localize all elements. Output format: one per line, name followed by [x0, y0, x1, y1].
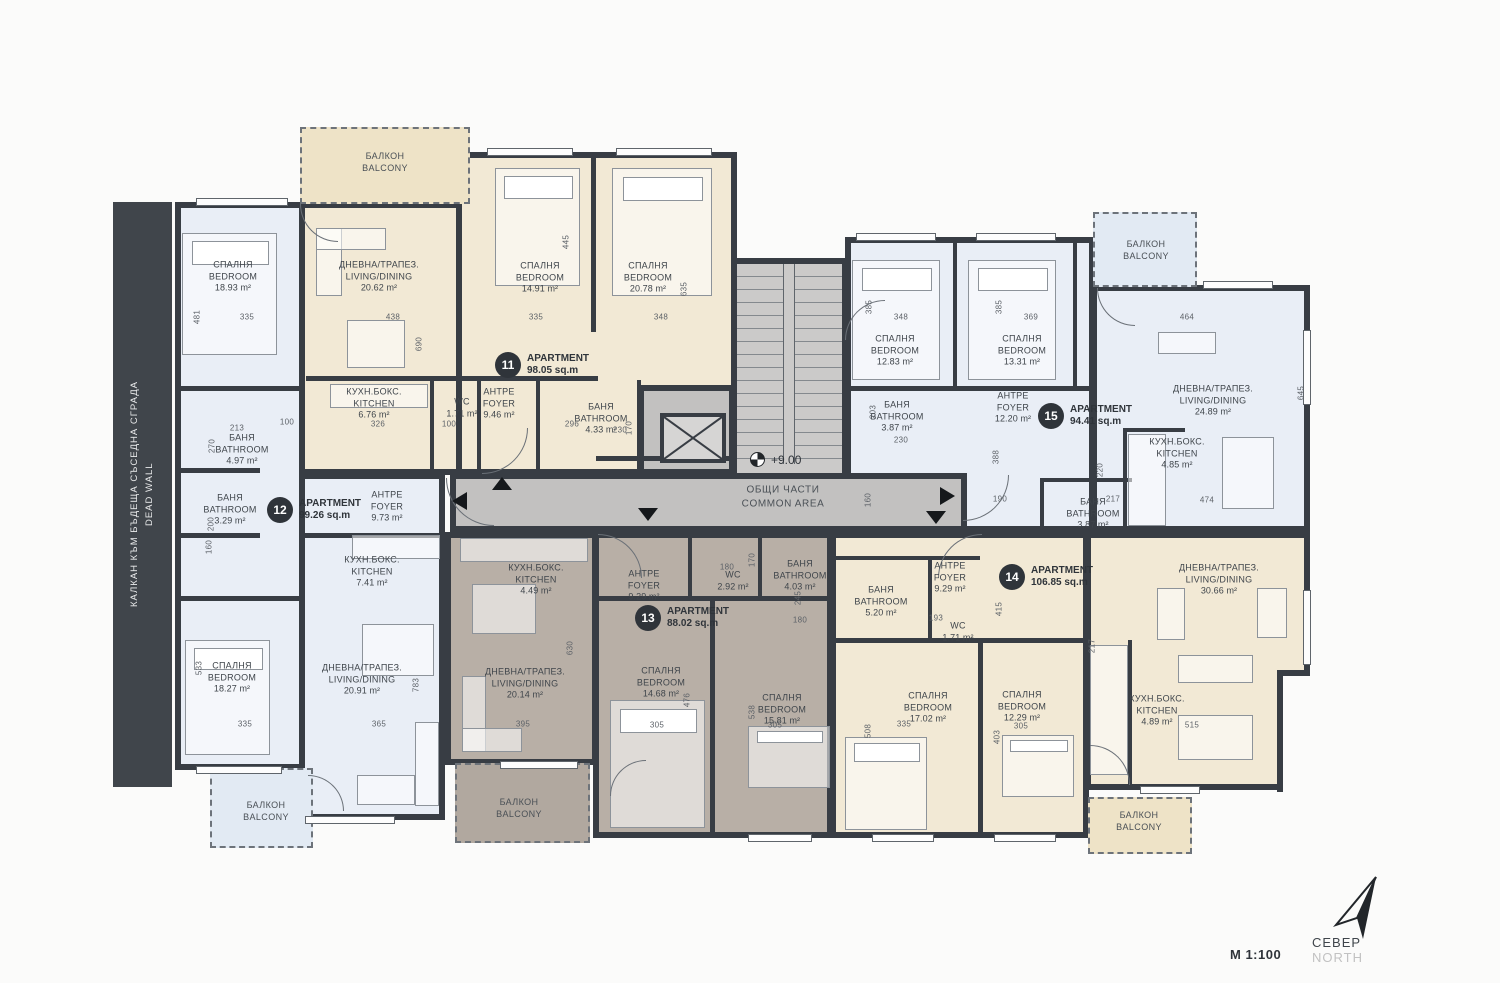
- dimension-label: 230: [613, 426, 627, 435]
- room-label-apartment-13: АНТРЕFOYER9.29 m²: [628, 568, 660, 603]
- apartment-title-area: APARTMENT88.02 sq.m: [667, 606, 729, 631]
- wall-segment: [928, 558, 932, 640]
- room-label-apartment-14: АНТРЕFOYER9.29 m²: [934, 560, 966, 595]
- dimension-label: 305: [650, 721, 664, 730]
- entrance-arrow-icon: [940, 487, 955, 505]
- common-corridor: [450, 473, 967, 532]
- room-label-apartment-12: СПАЛНЯBEDROOM18.27 m²: [208, 660, 256, 695]
- dimension-label: 783: [412, 678, 421, 692]
- wall-segment: [536, 380, 540, 473]
- apartment-badge-11: 11APARTMENT98.05 sq.m: [495, 352, 589, 378]
- room-label-apartment-11: СПАЛНЯBEDROOM20.78 m²: [624, 260, 672, 295]
- window-icon: [1203, 281, 1273, 289]
- common-area-label-bg: ОБЩИ ЧАСТИ: [747, 485, 820, 496]
- sofa-icon: [1257, 588, 1287, 638]
- apartment-title-area: APARTMENT94.41 sq.m: [1070, 404, 1132, 429]
- room-label-apartment-14: ДНЕВНА/ТРАПЕЗ.LIVING/DINING30.66 m²: [1179, 562, 1259, 597]
- entrance-arrow-icon: [492, 477, 512, 490]
- dimension-label: 335: [238, 720, 252, 729]
- room-label-apartment-11: WC1.71 m²: [446, 396, 477, 419]
- dimension-label: 160: [205, 540, 214, 554]
- dimension-label: 100: [442, 420, 456, 429]
- balcony-label: БАЛКОНBALCONY: [496, 796, 542, 820]
- level-value: +9.00: [771, 453, 801, 467]
- dimension-label: 296: [565, 420, 579, 429]
- balcony-label: БАЛКОНBALCONY: [1116, 809, 1162, 833]
- room-label-apartment-11: АНТРЕFOYER9.46 m²: [483, 386, 515, 421]
- dimension-label: 220: [1096, 463, 1105, 477]
- dimension-label: 203: [869, 405, 878, 419]
- apartment-badge-13: 13APARTMENT88.02 sq.m: [635, 605, 729, 631]
- dead-wall-label-bg: КАЛКАН КЪМ БЪДЕЩА СЪСЕДНА СГРАДА: [129, 381, 140, 607]
- wall-segment: [181, 386, 299, 391]
- dimension-label: 100: [280, 418, 294, 427]
- wall-segment: [953, 237, 957, 389]
- room-label-apartment-11: ДНЕВНА/ТРАПЕЗ.LIVING/DINING20.62 m²: [339, 259, 419, 294]
- dimension-label: 438: [386, 313, 400, 322]
- sofa-icon: [357, 775, 415, 805]
- bed-furniture-icon: [845, 737, 927, 830]
- dimension-label: 365: [372, 720, 386, 729]
- balcony-label: БАЛКОНBALCONY: [243, 799, 289, 823]
- dimension-label: 474: [1200, 496, 1214, 505]
- window-icon: [872, 834, 934, 842]
- window-icon: [305, 816, 395, 824]
- room-label-apartment-12: БАНЯBATHROOM4.97 m²: [215, 432, 268, 467]
- apartment-number: 12: [267, 497, 293, 523]
- dimension-label: 305: [1014, 722, 1028, 731]
- window-icon: [500, 761, 578, 769]
- apartment-badge-12: 12APARTMENT99.26 sq.m: [267, 497, 361, 523]
- wall-segment: [430, 380, 434, 473]
- wall-segment: [710, 600, 715, 838]
- apartment-badge-15: 15APARTMENT94.41 sq.m: [1038, 403, 1132, 429]
- dining-table-icon: [1222, 437, 1274, 509]
- dimension-label: 305: [768, 721, 782, 730]
- room-label-apartment-15: СПАЛНЯBEDROOM13.31 m²: [998, 333, 1046, 368]
- room-label-apartment-11: КУХН.БОКС.KITCHEN6.76 m²: [346, 386, 402, 421]
- dimension-label: 213: [230, 424, 244, 433]
- wall-segment: [181, 533, 260, 538]
- dimension-label: 180: [793, 616, 807, 625]
- window-icon: [616, 148, 712, 156]
- apartment-title-area: APARTMENT106.85 sq.m: [1031, 565, 1093, 590]
- window-icon: [1140, 786, 1200, 794]
- dimension-label: 217: [1088, 639, 1097, 653]
- entrance-arrow-icon: [638, 508, 658, 521]
- wall-segment: [1123, 430, 1127, 532]
- room-label-apartment-14: СПАЛНЯBEDROOM12.29 m²: [998, 689, 1046, 724]
- room-label-apartment-13: WC2.92 m²: [717, 569, 748, 592]
- dimension-label: 533: [195, 661, 204, 675]
- wall-segment: [1040, 478, 1044, 532]
- room-label-apartment-13: БАНЯBATHROOM4.03 m²: [773, 558, 826, 593]
- dimension-label: 326: [371, 420, 385, 429]
- stairs-stringer: [783, 264, 795, 464]
- room-label-apartment-15: КУХН.БОКС.KITCHEN4.85 m²: [1149, 436, 1205, 471]
- dimension-label: 515: [1185, 721, 1199, 730]
- window-icon: [976, 233, 1056, 241]
- apartment-number: 14: [999, 564, 1025, 590]
- dimension-label: 348: [654, 313, 668, 322]
- dimension-label: 481: [193, 310, 202, 324]
- wall-segment: [181, 596, 299, 601]
- dimension-label: 180: [720, 563, 734, 572]
- sofa-icon: [1158, 332, 1216, 354]
- kitchen-counter-icon: [460, 538, 588, 562]
- elevator-icon: [660, 413, 726, 463]
- window-icon: [487, 148, 573, 156]
- window-icon: [196, 766, 282, 774]
- level-marker: +9.00: [750, 452, 801, 467]
- room-label-apartment-15: АНТРЕFOYER12.20 m²: [995, 390, 1031, 425]
- balcony-label: БАЛКОНBALCONY: [362, 150, 408, 174]
- dimension-label: 403: [993, 730, 1002, 744]
- wall-segment: [978, 640, 983, 838]
- dimension-label: 200: [207, 517, 216, 531]
- dimension-label: 335: [240, 313, 254, 322]
- dimension-label: 217: [1106, 495, 1120, 504]
- common-area-label: ОБЩИ ЧАСТИ COMMON AREA: [742, 484, 825, 511]
- apartment-title-area: APARTMENT99.26 sq.m: [299, 498, 361, 523]
- dining-table-icon: [347, 320, 405, 368]
- room-label-apartment-12: АНТРЕFOYER9.73 m²: [371, 489, 403, 524]
- sofa-icon: [415, 722, 439, 806]
- bed-furniture-icon: [748, 726, 830, 788]
- bed-furniture-icon: [185, 640, 270, 755]
- room-label-apartment-13: ДНЕВНА/ТРАПЕЗ.LIVING/DINING20.14 m²: [485, 666, 565, 701]
- apartment-number: 15: [1038, 403, 1064, 429]
- dimension-label: 690: [415, 337, 424, 351]
- level-symbol-icon: [750, 452, 765, 467]
- bed-furniture-icon: [610, 700, 705, 828]
- dimension-label: 445: [562, 235, 571, 249]
- dimension-label: 464: [1180, 313, 1194, 322]
- dimension-label: 335: [529, 313, 543, 322]
- scale-label: М 1:100: [1230, 947, 1281, 962]
- sofa-icon: [462, 728, 522, 752]
- dimension-label: 538: [748, 705, 757, 719]
- dimension-label: 245: [794, 591, 803, 605]
- dimension-label: 635: [680, 282, 689, 296]
- apartment-number: 11: [495, 352, 521, 378]
- north-label-en: NORTH: [1312, 950, 1363, 965]
- balcony-label: БАЛКОНBALCONY: [1123, 238, 1169, 262]
- dead-wall: КАЛКАН КЪМ БЪДЕЩА СЪСЕДНА СГРАДА DEAD WA…: [113, 202, 172, 787]
- dimension-label: 385: [995, 300, 1004, 314]
- room-label-apartment-13: СПАЛНЯBEDROOM14.68 m²: [637, 665, 685, 700]
- bed-furniture-icon: [1002, 735, 1074, 797]
- dimension-label: 415: [995, 602, 1004, 616]
- apartment-title-area: APARTMENT98.05 sq.m: [527, 353, 589, 378]
- wall-segment: [477, 380, 481, 473]
- room-label-apartment-14: WC1.71 m²: [942, 620, 973, 643]
- wall-segment: [1123, 428, 1185, 432]
- wall-segment: [591, 152, 596, 332]
- dead-wall-label-en: DEAD WALL: [145, 463, 156, 527]
- apartment-number: 13: [635, 605, 661, 631]
- dimension-label: 395: [516, 720, 530, 729]
- common-area-label-en: COMMON AREA: [742, 498, 825, 509]
- dead-wall-label: КАЛКАН КЪМ БЪДЕЩА СЪСЕДНА СГРАДА DEAD WA…: [127, 381, 157, 607]
- dimension-label: 160: [864, 493, 873, 507]
- room-label-apartment-15: ДНЕВНА/ТРАПЕЗ.LIVING/DINING24.89 m²: [1173, 383, 1253, 418]
- title-block: М 1:100 СЕВЕР NORTH: [1230, 875, 1410, 975]
- north-label-bg: СЕВЕР: [1312, 935, 1363, 950]
- window-icon: [856, 233, 936, 241]
- room-label-apartment-15: СПАЛНЯBEDROOM12.83 m²: [871, 333, 919, 368]
- dimension-label: 369: [1024, 313, 1038, 322]
- sofa-icon: [1178, 655, 1253, 683]
- room-label-apartment-14: КУХН.БОКС.KITCHEN4.89 m²: [1129, 693, 1185, 728]
- dimension-label: 170: [748, 553, 757, 567]
- wall-segment: [758, 532, 762, 598]
- window-icon: [748, 834, 812, 842]
- room-label-apartment-12: СПАЛНЯBEDROOM18.93 m²: [209, 259, 257, 294]
- room-label-apartment-15: БАНЯBATHROOM3.87 m²: [870, 399, 923, 434]
- north-label: СЕВЕР NORTH: [1312, 935, 1363, 965]
- room-label-apartment-12: ДНЕВНА/ТРАПЕЗ.LIVING/DINING20.91 m²: [322, 662, 402, 697]
- window-icon: [994, 834, 1056, 842]
- room-label-apartment-11: СПАЛНЯBEDROOM14.91 m²: [516, 260, 564, 295]
- room-label-apartment-12: КУХН.БОКС.KITCHEN7.41 m²: [344, 554, 400, 589]
- room-label-apartment-13: КУХН.БОКС.KITCHEN4.49 m²: [508, 562, 564, 597]
- apartment-badge-14: 14APARTMENT106.85 sq.m: [999, 564, 1093, 590]
- wall-segment: [1073, 237, 1077, 389]
- dimension-label: 348: [894, 313, 908, 322]
- dimension-label: 190: [993, 495, 1007, 504]
- building-step-notch: [1277, 670, 1310, 792]
- dimension-label: 630: [566, 641, 575, 655]
- dimension-label: 476: [683, 693, 692, 707]
- dimension-label: 193: [929, 614, 943, 623]
- window-icon: [1303, 590, 1311, 665]
- dimension-label: 230: [894, 436, 908, 445]
- room-label-apartment-14: БАНЯBATHROOM5.20 m²: [854, 584, 907, 619]
- entrance-arrow-icon: [452, 492, 467, 510]
- elevator-x-icon: [664, 417, 722, 459]
- wall-segment: [181, 468, 260, 473]
- dimension-label: 508: [864, 724, 873, 738]
- dimension-label: 385: [865, 300, 874, 314]
- dimension-label: 270: [208, 439, 217, 453]
- dimension-label: 335: [897, 720, 911, 729]
- dimension-label: 388: [992, 450, 1001, 464]
- wall-segment: [688, 532, 692, 598]
- floor-plan: КАЛКАН КЪМ БЪДЕЩА СЪСЕДНА СГРАДА DEAD WA…: [0, 0, 1500, 983]
- dimension-label: 645: [1297, 386, 1306, 400]
- wall-segment: [851, 386, 1091, 391]
- wall-segment: [1042, 478, 1132, 482]
- entrance-arrow-icon: [926, 511, 946, 524]
- window-icon: [196, 198, 288, 206]
